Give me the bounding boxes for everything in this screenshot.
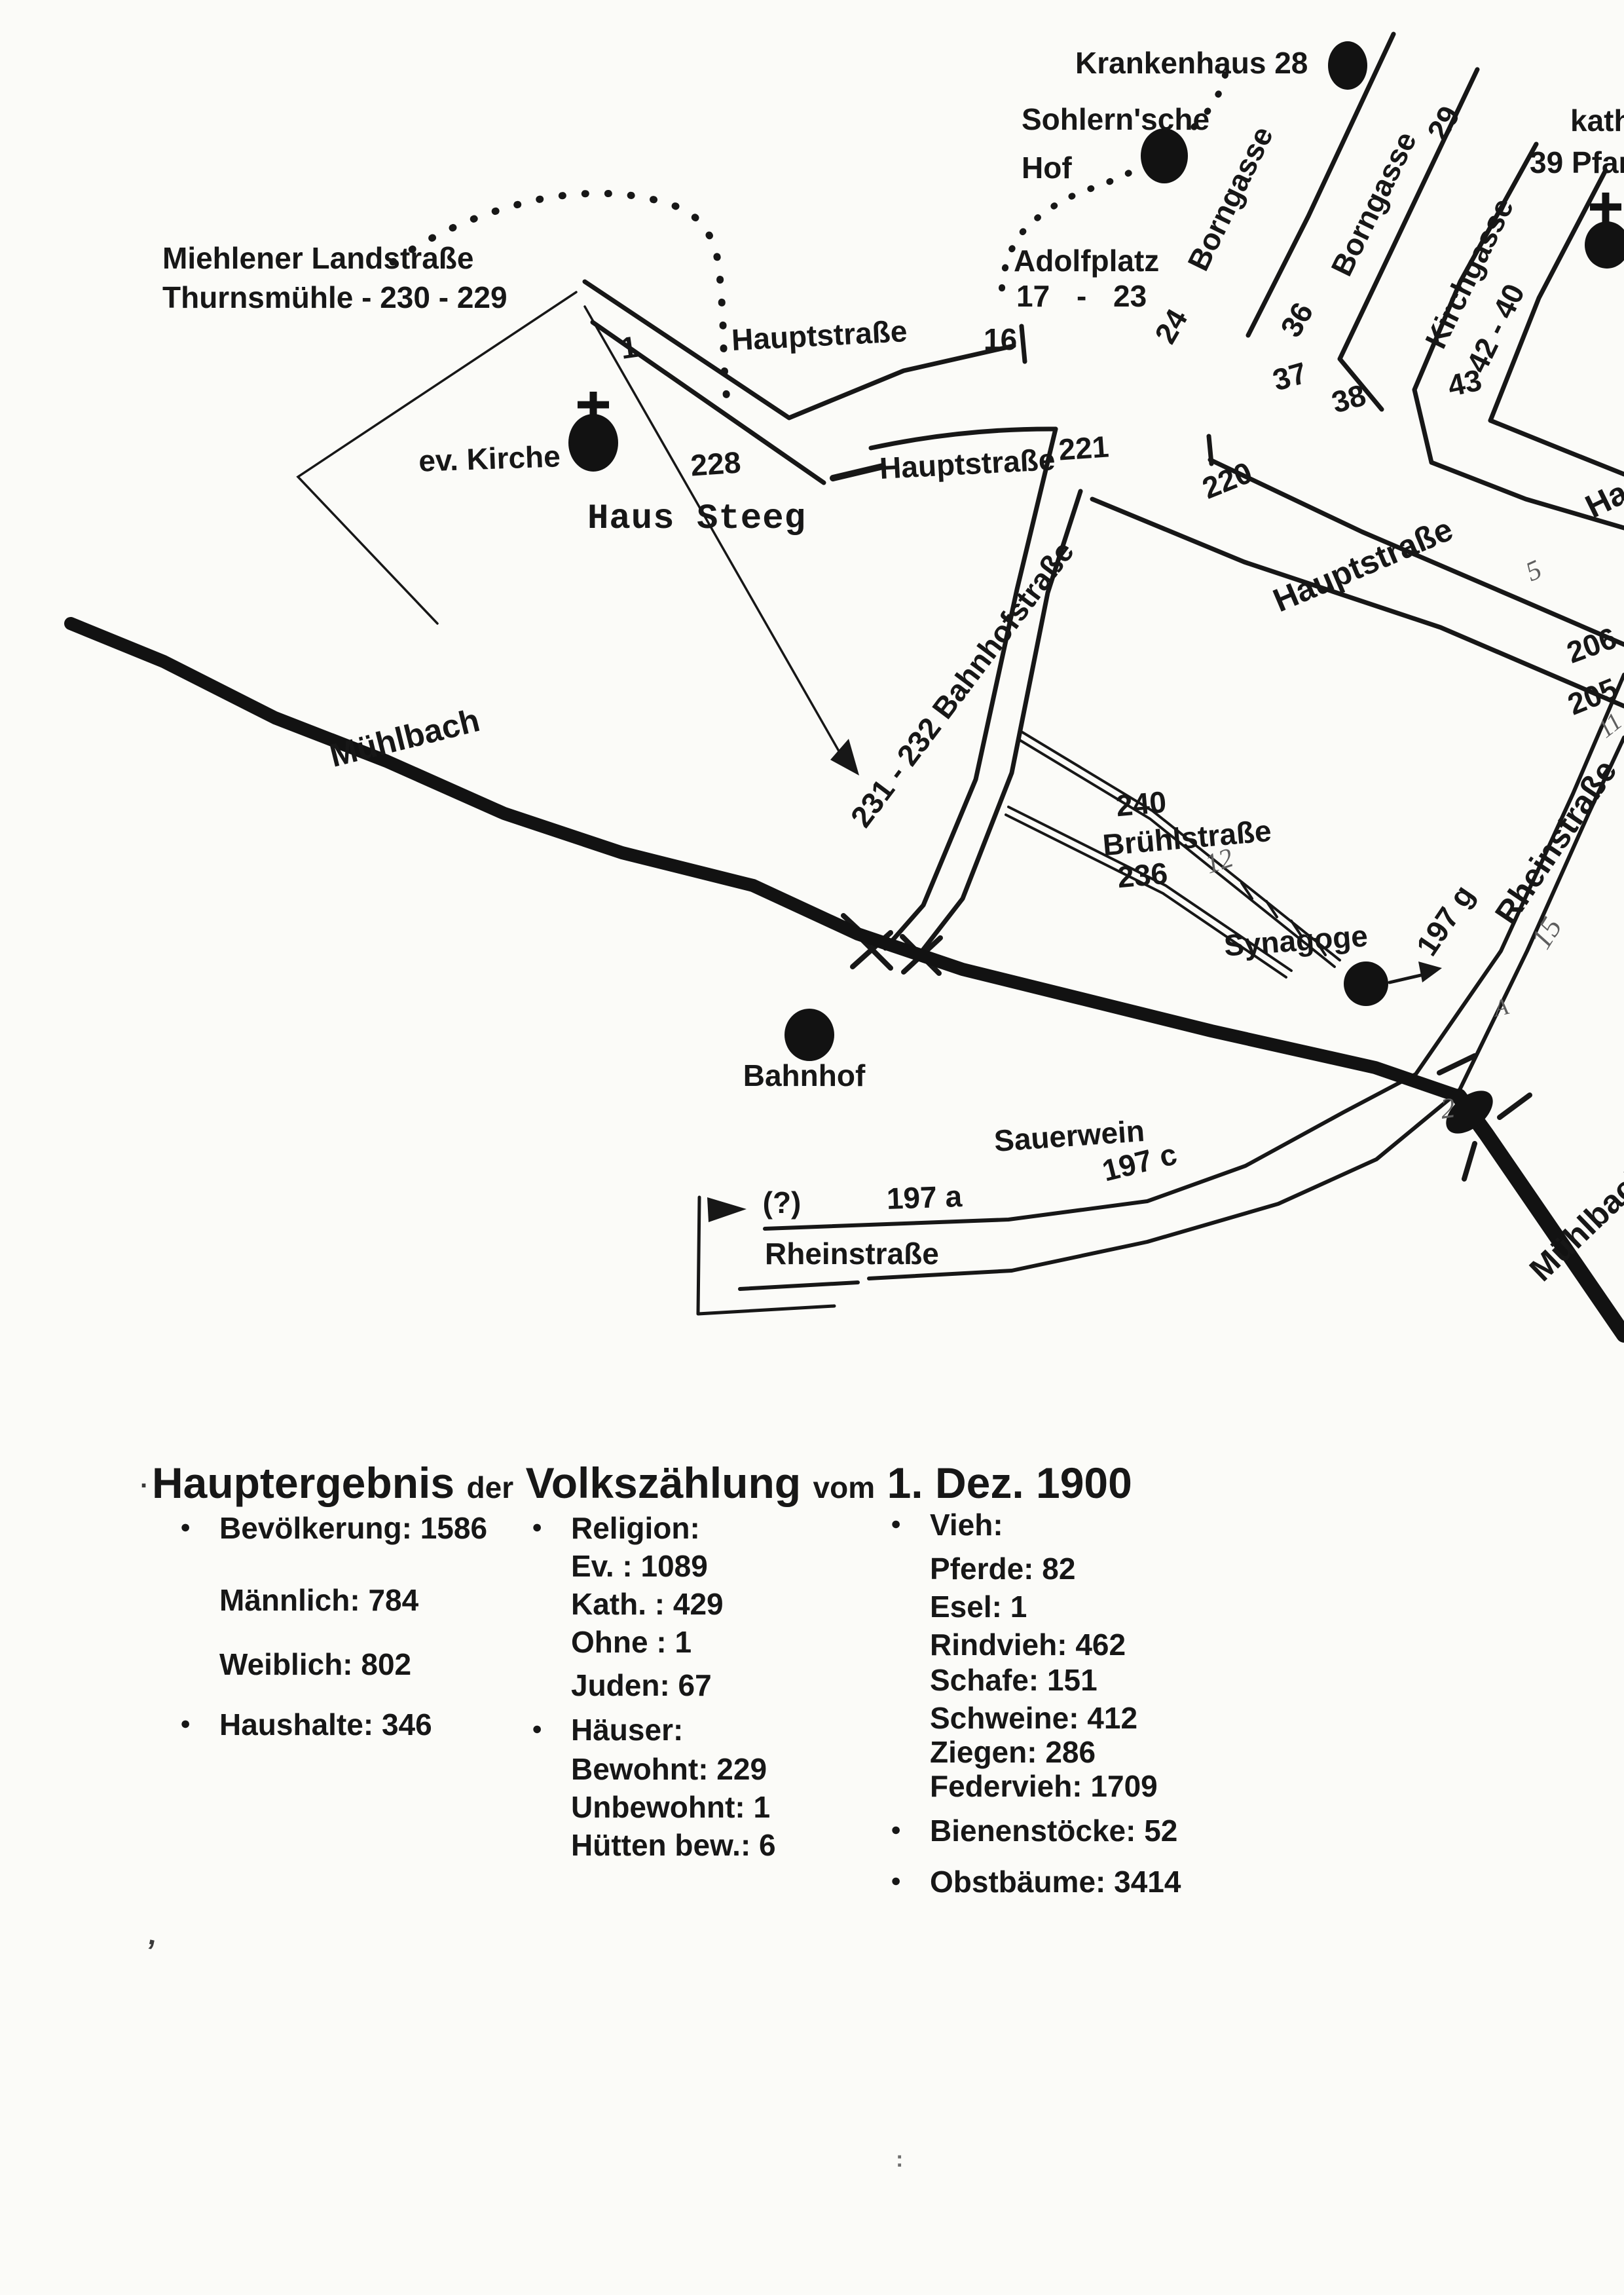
census-title-part4: vom [813,1470,876,1504]
label-no-197a: 197 a [886,1179,963,1216]
label-question-mark: (?) [763,1185,802,1220]
label-rheinstrasse-south: Rheinstraße [765,1237,939,1271]
rheinstrasse-west-arrowhead [707,1197,747,1222]
census-value: Bewohnt: 229 [571,1752,767,1786]
bullet-dot: ● [891,1515,901,1533]
census-value: Esel: 1 [930,1590,1027,1624]
label-no-16: 16 [984,322,1017,356]
census-title-part5: 1. Dez. 1900 [887,1459,1132,1507]
census-line: ●Obstbäume: 3414 [930,1867,1181,1897]
stray-mark: . [140,1466,147,1492]
bullet-dot: ● [532,1720,542,1738]
synagoge-arrow-line [1390,975,1424,982]
label-borngasse-west: Borngasse [1181,121,1280,276]
census-line: Bewohnt: 229 [571,1754,767,1784]
census-line: ●Häuser: [571,1715,683,1745]
label-no-24: 24 [1148,303,1194,349]
stray-mark: : [896,2148,903,2171]
census-value: Häuser: [571,1713,683,1747]
label-no-206: 206 [1562,620,1621,669]
census-line: Juden: 67 [571,1670,712,1700]
census-value: Bevölkerung: 1586 [219,1511,487,1545]
ev-kirche-church-icon [568,392,618,472]
census-line: ●Bienenstöcke: 52 [930,1816,1177,1846]
label-synagoge: Synagoge [1223,918,1369,962]
census-line: ●Vieh: [930,1510,1003,1540]
label-haus-steeg: Haus Steeg [587,499,806,539]
census-value: Ev. : 1089 [571,1549,708,1583]
census-value: Vieh: [930,1508,1003,1542]
census-value: Pferde: 82 [930,1552,1075,1586]
bullet-dot: ● [180,1518,191,1536]
label-no-221: 221 [1058,429,1110,466]
town-map: Krankenhaus 28 Sohlern'sche Hof Borngass… [0,0,1624,1415]
census-title-part1: Hauptergebnis [152,1459,454,1507]
census-line: Ev. : 1089 [571,1551,708,1581]
census-line: Kath. : 429 [571,1589,724,1619]
census-line: Esel: 1 [930,1592,1027,1622]
census-value: Haushalte: 346 [219,1707,432,1742]
census-title-part3: Volkszählung [526,1459,802,1507]
landmarks [568,41,1624,1222]
census-line: ●Haushalte: 346 [219,1709,432,1740]
label-hauptstrasse-mid: Hauptstraße [879,442,1056,485]
label-bahnhof: Bahnhof [743,1058,866,1092]
label-no-220: 220 [1198,455,1257,506]
label-bahnhofstrasse: 231 - 232 Bahnhofstraße [843,534,1080,833]
census-value: Schafe: 151 [930,1663,1098,1697]
bullet-dot: ● [891,1821,901,1838]
label-miehlener-landstrasse: Miehlener Landstraße [162,241,473,275]
census-line: ●Bevölkerung: 1586 [219,1513,487,1543]
handwritten-15: 15 [1524,911,1568,954]
census-line: Unbewohnt: 1 [571,1792,770,1822]
census-line: Hütten bew.: 6 [571,1830,776,1860]
census-line: Männlich: 784 [219,1585,418,1615]
label-hauptstrasse-nw: Hauptstraße [731,314,908,357]
bullet-dot: ● [891,1872,901,1890]
bullet-dot: ● [180,1715,191,1732]
label-krankenhaus: Krankenhaus 28 [1075,46,1308,80]
census-value: Hütten bew.: 6 [571,1828,776,1862]
census-line: Schweine: 412 [930,1703,1137,1733]
census-line: Weiblich: 802 [219,1649,411,1679]
sohlern-hof-dot [1141,128,1188,183]
kath-kirche-church-icon [1585,193,1624,269]
map-labels: Krankenhaus 28 Sohlern'sche Hof Borngass… [162,46,1624,1288]
label-rheinstrasse-ne: Rheinstraße [1488,753,1624,931]
handwritten-5: 5 [1521,555,1546,588]
census-value: Unbewohnt: 1 [571,1790,770,1824]
census-line: Pferde: 82 [930,1554,1075,1584]
label-no-43: 43 [1445,363,1485,403]
label-no-36: 36 [1274,297,1320,343]
label-sohlern-line1: Sohlern'sche [1022,102,1209,136]
census-value: Schweine: 412 [930,1701,1137,1735]
census-value: Juden: 67 [571,1668,712,1702]
label-no-228: 228 [690,445,742,482]
census-title: Hauptergebnis der Volkszählung vom 1. De… [152,1458,1132,1508]
bullet-dot: ● [532,1518,542,1536]
bahnhof-dot [784,1009,834,1061]
krankenhaus-dot [1328,41,1367,90]
census-line: Federvieh: 1709 [930,1771,1158,1801]
census-value: Ziegen: 286 [930,1735,1096,1769]
census-value: Rindvieh: 462 [930,1628,1126,1662]
road-hauptstrasse-ne-south [1490,420,1624,474]
stray-mark: , [146,1918,160,1950]
label-no-37: 37 [1269,356,1311,398]
muehlbach-stream [71,624,1624,1335]
census-value: Bienenstöcke: 52 [930,1814,1177,1848]
label-pfarrhaus-clipped: 39 Pfarr [1530,145,1624,179]
census-value: Männlich: 784 [219,1583,418,1617]
label-no-1: 1 [618,329,640,365]
census-line: ●Religion: [571,1513,700,1543]
census-value: Weiblich: 802 [219,1647,411,1681]
label-no-197g: 197 g [1409,879,1481,962]
scanned-map-page: { "page": { "background": "#fbfbf8", "in… [0,0,1624,2295]
census-value: Ohne : 1 [571,1625,692,1659]
label-no-236: 236 [1116,856,1169,894]
road-dash-before-hauptstrasse [833,466,883,478]
census-value: Kath. : 429 [571,1587,724,1621]
census-value: Federvieh: 1709 [930,1769,1158,1803]
census-line: Rindvieh: 462 [930,1630,1126,1660]
census-line: Schafe: 151 [930,1665,1098,1695]
label-thurnsmuehle: Thurnsmühle - 230 - 229 [162,280,507,314]
label-sohlern-line2: Hof [1022,151,1072,185]
census-title-part2: der [467,1470,514,1504]
label-ev-kirche: ev. Kirche [418,439,561,478]
label-kath-clipped: kath [1570,103,1624,138]
label-no-240: 240 [1115,785,1168,823]
census-line: Ohne : 1 [571,1627,692,1657]
synagoge-dot [1344,961,1388,1006]
label-adolfplatz: Adolfplatz [1014,244,1159,278]
label-adolfplatz-numbers: 17 - 23 [1016,279,1147,313]
census-value: Religion: [571,1511,700,1545]
muehlbach-stream-main [71,624,1459,1096]
synagoge-arrowhead [1418,961,1442,982]
census-value: Obstbäume: 3414 [930,1865,1181,1899]
census-line: Ziegen: 286 [930,1737,1096,1767]
